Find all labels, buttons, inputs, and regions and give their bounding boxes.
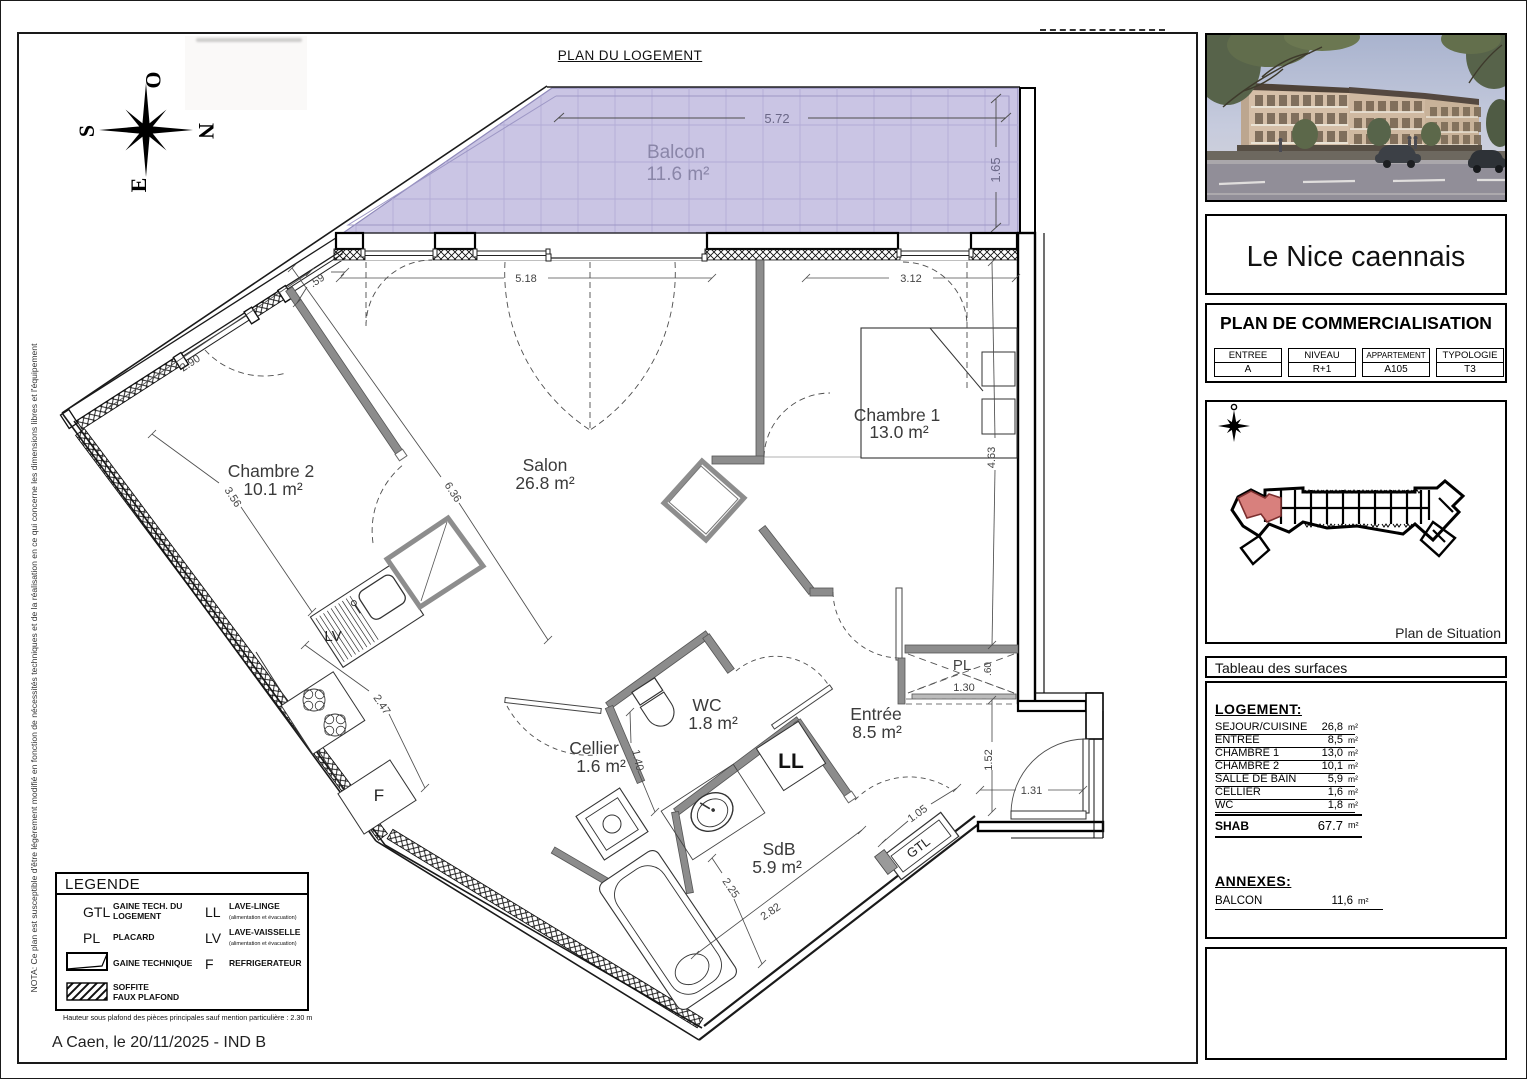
svg-text:2.25: 2.25 bbox=[720, 876, 742, 900]
svg-text:26.8 m²: 26.8 m² bbox=[515, 473, 574, 493]
svg-text:1.05: 1.05 bbox=[906, 803, 930, 825]
svg-text:1.8 m²: 1.8 m² bbox=[688, 713, 738, 733]
svg-text:8.5 m²: 8.5 m² bbox=[852, 722, 902, 742]
svg-text:PL: PL bbox=[953, 657, 971, 674]
svg-text:SdB: SdB bbox=[762, 839, 795, 859]
svg-text:F: F bbox=[374, 786, 384, 805]
svg-text:1.6 m²: 1.6 m² bbox=[576, 756, 626, 776]
svg-text:13.0 m²: 13.0 m² bbox=[869, 422, 928, 442]
svg-text:Cellier: Cellier bbox=[569, 738, 619, 758]
svg-text:3.12: 3.12 bbox=[900, 273, 921, 285]
svg-text:5.18: 5.18 bbox=[515, 273, 536, 285]
svg-text:5.72: 5.72 bbox=[764, 111, 789, 126]
svg-text:1.30: 1.30 bbox=[953, 682, 974, 694]
svg-text:11.6 m²: 11.6 m² bbox=[646, 164, 709, 185]
svg-text:6.36: 6.36 bbox=[442, 480, 464, 505]
svg-text:LV: LV bbox=[324, 628, 341, 645]
svg-text:1.31: 1.31 bbox=[1021, 785, 1042, 797]
svg-text:2.47: 2.47 bbox=[371, 693, 393, 717]
svg-text:Salon: Salon bbox=[523, 455, 568, 475]
svg-text:4.63: 4.63 bbox=[986, 447, 998, 468]
svg-text:N: N bbox=[194, 123, 219, 139]
svg-text:WC: WC bbox=[692, 695, 721, 715]
svg-text:Chambre 2: Chambre 2 bbox=[228, 461, 315, 481]
svg-text:Balcon: Balcon bbox=[647, 142, 705, 163]
svg-text:10.1 m²: 10.1 m² bbox=[243, 479, 302, 499]
svg-text:.60: .60 bbox=[983, 662, 994, 676]
svg-text:5.9 m²: 5.9 m² bbox=[752, 857, 802, 877]
svg-text:LL: LL bbox=[778, 750, 804, 773]
svg-text:1.65: 1.65 bbox=[988, 157, 1003, 182]
svg-text:Entrée: Entrée bbox=[850, 704, 902, 724]
svg-text:O: O bbox=[141, 71, 166, 88]
svg-text:3.56: 3.56 bbox=[222, 485, 244, 510]
svg-text:1.52: 1.52 bbox=[983, 749, 995, 770]
svg-text:E: E bbox=[126, 178, 151, 193]
svg-text:S: S bbox=[74, 125, 99, 137]
